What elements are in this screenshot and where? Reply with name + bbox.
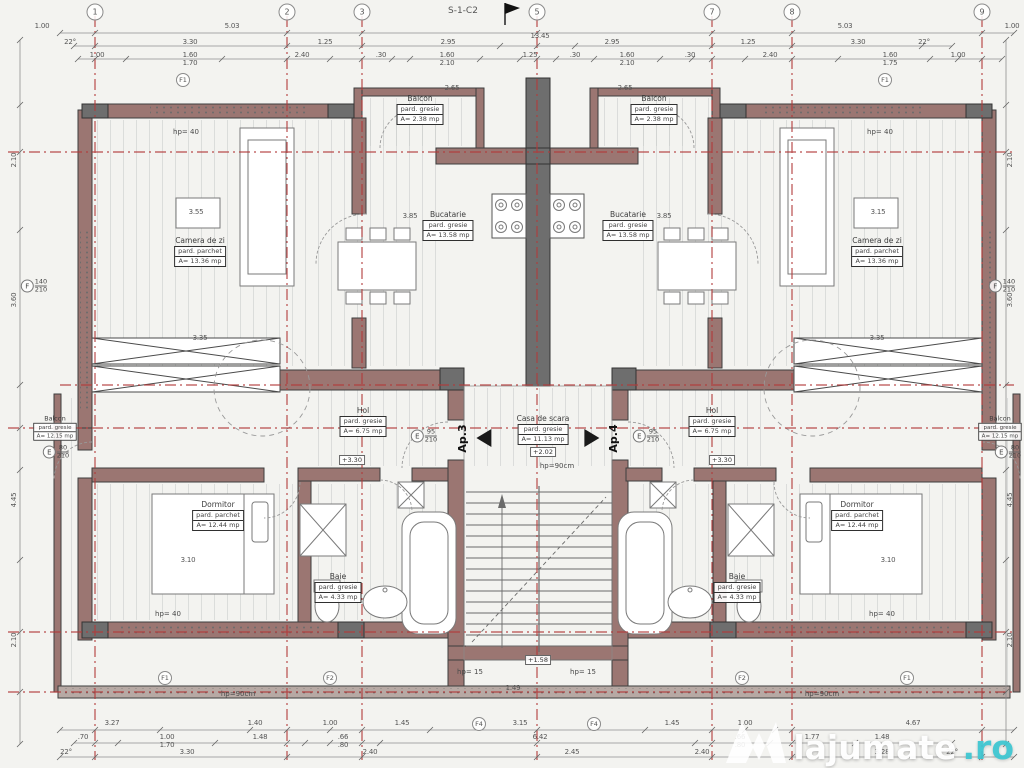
room-name: Baie (315, 572, 362, 581)
dimension-label: 22° (60, 748, 72, 756)
opening-tag-size: 95210 (647, 429, 659, 444)
room-floor-finish: pard. parchet (852, 247, 902, 256)
dimension-label: 1.25 (318, 38, 333, 46)
dimension-label: 2.10 (1006, 633, 1014, 648)
room-info-box: pard. gresieA= 13.58 mp (422, 220, 473, 241)
dimension-label: 1.45 (665, 719, 680, 727)
dimension-label: 1.40 (248, 719, 263, 727)
opening-tag-letter: E (995, 446, 1008, 459)
watermark-tld: .ro (963, 731, 1014, 764)
room-area: A= 11.13 mp (518, 434, 567, 444)
opening-tag-letter: E (43, 446, 56, 459)
dimension-label: 3.30 (180, 748, 195, 756)
room-area: A= 13.36 mp (175, 256, 225, 266)
level-marker: +3.30 (339, 455, 365, 465)
room-floor-finish: pard. gresie (603, 221, 652, 230)
room-name: Casa de scara (517, 414, 570, 423)
parapet-note: hp=90cm (805, 690, 839, 698)
parapet-note: hp= 15 (570, 668, 596, 676)
parapet-note: hp= 40 (155, 610, 181, 618)
grid-bubble-f4: F4 (472, 717, 486, 731)
dimension-label: 1.00 (90, 51, 105, 59)
room-floor-finish: pard. parchet (175, 247, 225, 256)
room-label-balcon: Balconpard. gresieA= 12.15 mp (978, 414, 1021, 440)
dimension-label-sub: 1.70 (183, 59, 198, 67)
room-name: Balcon (978, 414, 1021, 422)
apartment-direction-arrow-icon (477, 429, 492, 447)
dimension-label: 2.45 (565, 748, 580, 756)
opening-tag-e: E80210 (995, 445, 1021, 460)
room-name: Camera de zi (851, 236, 903, 245)
grid-bubble-f1: F1 (158, 671, 172, 685)
parapet-note: hp=90cm (540, 462, 574, 470)
apartment-arrow-ap-4: Ap.4 (584, 429, 627, 447)
opening-tag-f: F140210 (989, 279, 1015, 294)
room-info-box: pard. parchetA= 12.44 mp (192, 510, 244, 531)
parapet-note: hp= 40 (173, 128, 199, 136)
room-area: A= 12.44 mp (832, 520, 882, 530)
section-flag-icon (502, 2, 522, 26)
dimension-label: 2.65 (445, 84, 460, 92)
room-name: Dormitor (192, 500, 244, 509)
apartment-label: Ap.4 (607, 424, 620, 452)
room-area: A= 12.44 mp (193, 520, 243, 530)
room-label-baie: Baiepard. gresieA= 4.33 mp (315, 572, 362, 603)
dimension-label: 3.27 (105, 719, 120, 727)
dimension-label: 1.00 (160, 733, 175, 741)
room-name: Balcon (631, 94, 678, 103)
dimension-label: .30 (570, 51, 581, 59)
room-area: A= 13.58 mp (423, 230, 472, 240)
room-floor-finish: pard. gresie (632, 105, 677, 114)
room-info-box: pard. gresieA= 4.33 mp (315, 582, 362, 603)
room-floor-finish: pard. gresie (979, 424, 1021, 432)
opening-tag-letter: E (633, 430, 646, 443)
dimension-label: 1.60 (620, 51, 635, 59)
watermark-logo-icon (725, 720, 787, 764)
drawing-title: S-1-C2 (448, 6, 478, 16)
opening-tag-size: 80210 (57, 445, 69, 460)
dimension-label: 1.60 (440, 51, 455, 59)
level-marker: +1.58 (525, 655, 551, 665)
room-info-box: pard. parchetA= 13.36 mp (174, 246, 226, 267)
dimension-label: 3.85 (657, 212, 672, 220)
room-label-balcon: Balconpard. gresieA= 2.38 mp (397, 94, 444, 125)
dimension-label: 3.15 (871, 208, 886, 216)
room-area: A= 13.58 mp (603, 230, 652, 240)
room-info-box: pard. gresieA= 4.33 mp (714, 582, 761, 603)
parapet-note: hp= 40 (867, 128, 893, 136)
dimension-label: 2.95 (441, 38, 456, 46)
room-floor-finish: pard. parchet (193, 511, 243, 520)
dimension-label: .70 (78, 733, 89, 741)
dimension-label: .30 (685, 51, 696, 59)
room-floor-finish: pard. gresie (34, 424, 76, 432)
dimension-label: 3.30 (851, 38, 866, 46)
dimension-label: 3.60 (10, 293, 18, 308)
dimension-label-sub: 1.75 (883, 59, 898, 67)
dimension-label: 1.25 (741, 38, 756, 46)
grid-bubble-7: 7 (704, 4, 721, 21)
dimension-label: 22° (64, 38, 76, 46)
parapet-note: hp= 15 (457, 668, 483, 676)
dimension-label: 2.65 (618, 84, 633, 92)
opening-tag-letter: E (411, 430, 424, 443)
room-area: A= 2.38 mp (632, 114, 677, 124)
dimension-label: 2.40 (763, 51, 778, 59)
room-floor-finish: pard. gresie (423, 221, 472, 230)
dimension-label: 3.85 (403, 212, 418, 220)
room-name: Bucatarie (602, 210, 653, 219)
grid-bubble-f1: F1 (878, 73, 892, 87)
dimension-label: 1.60 (183, 51, 198, 59)
dimension-label: 3.55 (189, 208, 204, 216)
dimension-label: 2.40 (363, 748, 378, 756)
dimension-label: 3.30 (183, 38, 198, 46)
room-floor-finish: pard. gresie (341, 417, 386, 426)
room-label-balcon: Balconpard. gresieA= 2.38 mp (631, 94, 678, 125)
parapet-note: hp= 40 (869, 610, 895, 618)
level-marker: +3.30 (709, 455, 735, 465)
watermark-brand: lajumate (793, 731, 956, 764)
room-info-box: pard. gresieA= 2.38 mp (631, 104, 678, 125)
opening-tag-letter: F (989, 280, 1002, 293)
room-label-bucatarie: Bucatariepard. gresieA= 13.58 mp (602, 210, 653, 241)
apartment-arrow-ap-3: Ap.3 (448, 429, 491, 447)
dimension-label: 1.25 (523, 51, 538, 59)
room-name: Camera de zi (174, 236, 226, 245)
room-label-balcon: Balconpard. gresieA= 12.15 mp (33, 414, 76, 440)
room-label-camera-de-zi: Camera de zipard. parchetA= 13.36 mp (174, 236, 226, 267)
room-info-box: pard. gresieA= 6.75 mp (689, 416, 736, 437)
dimension-label-sub: .80 (338, 741, 349, 749)
dimension-label: 3.35 (870, 334, 885, 342)
grid-bubble-8: 8 (784, 4, 801, 21)
dimension-label: 2.95 (605, 38, 620, 46)
room-label-hol: Holpard. gresieA= 6.75 mp (689, 406, 736, 437)
opening-tag-e: E95210 (633, 429, 659, 444)
opening-tag-e: E80210 (43, 445, 69, 460)
floor-plan-canvas: S-1-C2 1.005.0313.455.031.0022°3.301.252… (0, 0, 1024, 768)
room-info-box: pard. gresieA= 2.38 mp (397, 104, 444, 125)
room-floor-finish: pard. gresie (398, 105, 443, 114)
room-area: A= 12.15 mp (34, 431, 76, 440)
grid-bubble-f1: F1 (900, 671, 914, 685)
dimension-label-sub: 2.10 (620, 59, 635, 67)
dimension-label: 5.03 (225, 22, 240, 30)
opening-tag-e: E95210 (411, 429, 437, 444)
room-floor-finish: pard. gresie (518, 425, 567, 434)
room-area: A= 4.33 mp (715, 592, 760, 602)
level-marker: +2.02 (530, 447, 556, 457)
room-name: Balcon (397, 94, 444, 103)
dimension-label: 4.45 (1006, 493, 1014, 508)
opening-tag-size: 140210 (35, 279, 47, 294)
room-info-box: pard. gresieA= 13.58 mp (602, 220, 653, 241)
room-area: A= 6.75 mp (690, 426, 735, 436)
grid-bubble-1: 1 (87, 4, 104, 21)
room-info-box: pard. gresieA= 12.15 mp (978, 423, 1021, 441)
room-area: A= 13.36 mp (852, 256, 902, 266)
room-label-dormitor: Dormitorpard. parchetA= 12.44 mp (192, 500, 244, 531)
apartment-direction-arrow-icon (584, 429, 599, 447)
watermark: lajumate .ro (725, 720, 1014, 764)
room-area: A= 6.75 mp (341, 426, 386, 436)
room-label-dormitor: Dormitorpard. parchetA= 12.44 mp (831, 500, 883, 531)
room-area: A= 4.33 mp (316, 592, 361, 602)
dimension-label: 3.60 (1006, 293, 1014, 308)
dimension-label: 13.45 (530, 32, 549, 40)
grid-bubble-f1: F1 (176, 73, 190, 87)
dimension-label: 2.40 (295, 51, 310, 59)
parapet-note: hp=90cm (221, 690, 255, 698)
room-area: A= 2.38 mp (398, 114, 443, 124)
apartment-label: Ap.3 (456, 424, 469, 452)
annotation-layer: 1.005.0313.455.031.0022°3.301.252.952.95… (0, 0, 1024, 768)
opening-tag-letter: F (21, 280, 34, 293)
room-floor-finish: pard. gresie (715, 583, 760, 592)
dimension-label-sub: 2.10 (440, 59, 455, 67)
dimension-label: 1.00 (323, 719, 338, 727)
grid-bubble-3: 3 (354, 4, 371, 21)
dimension-label: .30 (376, 51, 387, 59)
dimension-label: 1.45 (395, 719, 410, 727)
room-name: Hol (689, 406, 736, 415)
room-info-box: pard. gresieA= 11.13 mp (517, 424, 568, 445)
room-label-bucatarie: Bucatariepard. gresieA= 13.58 mp (422, 210, 473, 241)
dimension-label: 1.00 (951, 51, 966, 59)
dimension-label: 3.15 (513, 719, 528, 727)
grid-bubble-2: 2 (279, 4, 296, 21)
dimension-label: 22° (918, 38, 930, 46)
room-info-box: pard. gresieA= 6.75 mp (340, 416, 387, 437)
dimension-label: 2.10 (10, 153, 18, 168)
room-label-casa-de-scara: Casa de scarapard. gresieA= 11.13 mp (517, 414, 570, 445)
room-info-box: pard. parchetA= 12.44 mp (831, 510, 883, 531)
dimension-label: 2.10 (10, 633, 18, 648)
dimension-label: 3.10 (881, 556, 896, 564)
room-label-hol: Holpard. gresieA= 6.75 mp (340, 406, 387, 437)
dimension-label: 4.45 (10, 493, 18, 508)
room-area: A= 12.15 mp (979, 431, 1021, 440)
room-floor-finish: pard. gresie (316, 583, 361, 592)
dimension-label: .66 (338, 733, 349, 741)
opening-tag-size: 95210 (425, 429, 437, 444)
dimension-label: 1.00 (35, 22, 50, 30)
dimension-label-sub: 1.70 (160, 741, 175, 749)
room-name: Balcon (33, 414, 76, 422)
room-name: Dormitor (831, 500, 883, 509)
dimension-label: 2.40 (695, 748, 710, 756)
grid-bubble-f2: F2 (323, 671, 337, 685)
room-name: Bucatarie (422, 210, 473, 219)
grid-bubble-5: 5 (529, 4, 546, 21)
dimension-label: 1.49 (506, 684, 521, 692)
dimension-label: 3.10 (181, 556, 196, 564)
room-info-box: pard. parchetA= 13.36 mp (851, 246, 903, 267)
dimension-label: 3.35 (193, 334, 208, 342)
dimension-label: 1.48 (253, 733, 268, 741)
dimension-label: 1.60 (883, 51, 898, 59)
room-floor-finish: pard. gresie (690, 417, 735, 426)
room-floor-finish: pard. parchet (832, 511, 882, 520)
dimension-label: 5.03 (838, 22, 853, 30)
grid-bubble-f4: F4 (587, 717, 601, 731)
dimension-label: 1.00 (1005, 22, 1020, 30)
room-label-baie: Baiepard. gresieA= 4.33 mp (714, 572, 761, 603)
grid-bubble-9: 9 (974, 4, 991, 21)
room-label-camera-de-zi: Camera de zipard. parchetA= 13.36 mp (851, 236, 903, 267)
room-name: Baie (714, 572, 761, 581)
opening-tag-size: 80210 (1009, 445, 1021, 460)
room-name: Hol (340, 406, 387, 415)
opening-tag-size: 140210 (1003, 279, 1015, 294)
dimension-label: 6.42 (533, 733, 548, 741)
room-info-box: pard. gresieA= 12.15 mp (33, 423, 76, 441)
opening-tag-f: F140210 (21, 279, 47, 294)
dimension-label: 2.10 (1006, 153, 1014, 168)
grid-bubble-f2: F2 (735, 671, 749, 685)
